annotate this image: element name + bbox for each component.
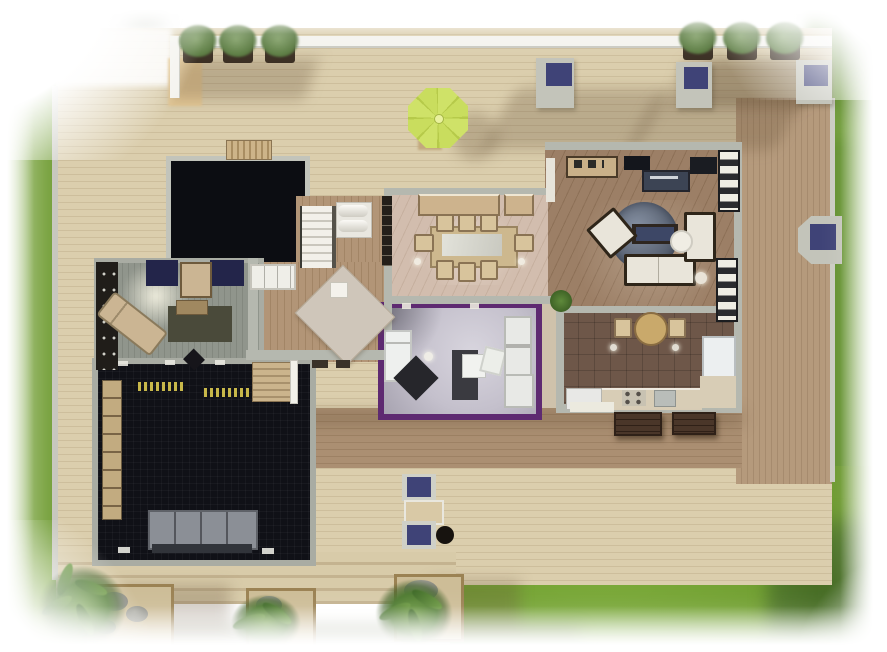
window [716,258,738,322]
small-table[interactable] [176,300,208,315]
ceiling-light [518,258,525,265]
door[interactable] [546,158,555,202]
pillar-cap [804,65,828,86]
wall-planter[interactable] [312,360,328,368]
deck-pillar [402,521,436,549]
stair-railing [290,360,298,404]
bush-left [0,38,46,114]
deck-curb-right [830,98,835,482]
desk-items [574,160,604,168]
stairs-to-theater[interactable] [252,362,292,402]
kitchen-counter[interactable] [700,376,736,408]
planter-foliage [261,25,299,57]
counter[interactable] [504,194,534,216]
deck-steps[interactable] [226,140,272,160]
game-viewport [0,0,887,652]
speaker[interactable] [690,157,717,174]
deck-pillar [402,474,436,501]
deck-pillar [536,58,574,108]
wall-sconce [118,547,130,553]
ceiling-light [672,344,679,351]
wall-window-mark [470,303,479,309]
dark-cabinet[interactable] [146,260,178,286]
wall [545,142,742,150]
palm-plant[interactable] [228,592,304,652]
deck-pillar [676,62,712,108]
vanity[interactable] [180,262,212,298]
palm-leaf [54,562,76,598]
ceiling-lamp [424,352,433,361]
wall-sconce [165,360,175,365]
wardrobe[interactable] [504,316,532,376]
sofa-base [152,544,252,553]
dining-chair[interactable] [480,260,498,280]
outdoor-bench[interactable] [614,412,662,436]
palm-leaf [73,577,109,599]
palm-leaf [405,608,424,644]
tv[interactable] [624,156,650,170]
deck-railing-return [170,36,180,98]
pillar-cap [407,525,431,545]
dresser[interactable] [250,264,296,290]
stair-flight [338,220,368,232]
dining-chair[interactable] [458,214,476,232]
stair-flight [338,205,368,217]
bookshelf[interactable] [382,196,392,266]
planter-foliage [179,25,217,57]
marker-strip [204,388,256,397]
palm-leaf [410,586,445,613]
pillar-cap [546,63,572,86]
deck-pillar [798,216,842,264]
side-table[interactable] [670,230,693,253]
railing-planter[interactable] [223,33,253,63]
dining-chair[interactable] [436,260,454,280]
potted-plant[interactable] [550,290,572,312]
deck-curb-left [52,86,58,580]
railing-planter[interactable] [265,33,295,63]
wall-sconce [118,361,128,366]
railing-planter[interactable] [727,30,757,60]
window [718,150,740,212]
dining-chair[interactable] [436,214,454,232]
planter-foliage [766,22,804,54]
palm-leaf [260,599,294,628]
deck-corner-fade [56,28,172,86]
wall [556,306,564,410]
dark-cabinet[interactable] [210,260,244,286]
kitchen-chair[interactable] [668,318,686,338]
umbrella-hub [434,114,444,124]
pillar-cap [810,224,836,250]
palm-leaf [231,611,267,633]
pillar-cap [684,67,708,89]
palm-leaf [73,602,97,637]
railing-planter[interactable] [683,30,713,60]
outdoor-bench[interactable] [672,412,716,435]
wall-planter[interactable] [336,360,350,368]
palm-leaf [40,592,75,619]
fridge[interactable] [702,336,736,380]
media-console[interactable] [642,170,690,192]
railing-planter[interactable] [770,30,800,60]
marker-strip [138,382,186,391]
counter[interactable] [418,194,500,216]
dining-chair[interactable] [514,234,534,252]
doormat-object[interactable] [330,282,348,298]
floor-lamp[interactable] [695,272,707,284]
railing-planter[interactable] [183,33,213,63]
kitchen-table[interactable] [634,312,668,346]
wall-sconce [262,548,274,554]
console-screen [650,176,678,179]
sliding-door[interactable] [570,402,614,412]
planter-foliage [723,22,761,54]
table-top [442,234,502,256]
palm-plant[interactable] [34,562,130,652]
wall-window-mark [402,303,411,309]
ceiling-light [414,258,421,265]
ceiling-light [610,344,617,351]
stove[interactable] [622,390,646,406]
dining-chair[interactable] [414,234,434,252]
shadow [169,58,319,100]
deck-pillar [796,60,832,104]
sink[interactable] [654,390,676,407]
pillar-cap [407,477,431,497]
dining-chair[interactable] [480,214,498,232]
planter-foliage [679,22,717,54]
coffee-table-top [636,227,674,241]
firepit[interactable] [436,526,454,544]
wall-sconce [215,360,225,365]
dining-chair[interactable] [458,262,476,282]
palm-plant[interactable] [372,576,456,652]
wardrobe[interactable] [504,374,534,408]
wall [246,350,394,360]
ladder-shelf[interactable] [102,380,122,520]
planter-foliage [219,25,257,57]
deck-right-walkway [736,98,832,484]
main-staircase[interactable] [300,206,334,268]
kitchen-chair[interactable] [614,318,632,338]
